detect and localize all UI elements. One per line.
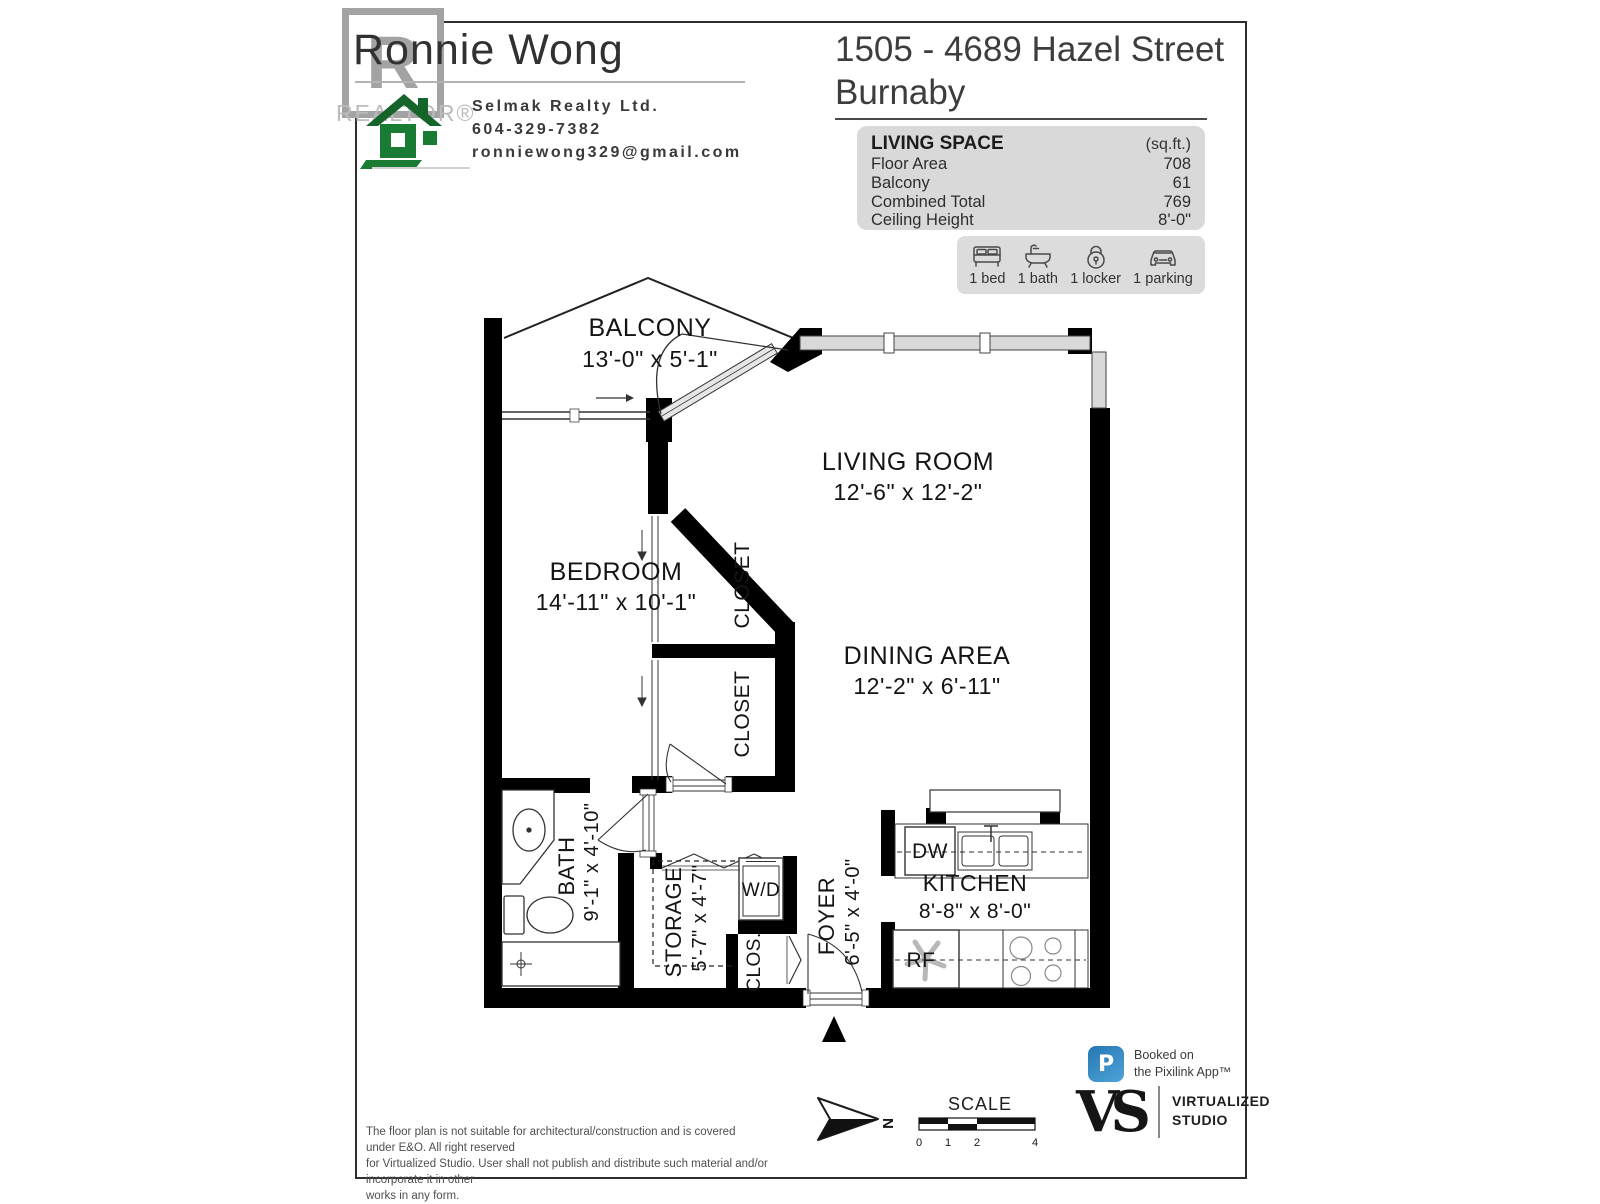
scale-tick: 4	[1032, 1137, 1038, 1149]
bath-dims: 9'-1" x 4'-10"	[581, 803, 603, 922]
scale-title: SCALE	[905, 1094, 1055, 1115]
pixilink-line1: Booked on	[1134, 1047, 1231, 1064]
virtualized-studio-logo: VS VIRTUALIZED STUDIO	[1076, 1084, 1270, 1140]
studio-line1: VIRTUALIZED	[1172, 1092, 1270, 1111]
dining-area-dims: 12'-2" x 6'-11"	[853, 673, 1000, 699]
storage-dims: 5'-7" x 4'-7"	[689, 864, 711, 971]
scale-bar: 0 1 2 4	[905, 1116, 1055, 1156]
living-room-label: LIVING ROOM	[822, 448, 994, 476]
vs-divider	[1158, 1086, 1160, 1138]
scale-tick: 1	[945, 1137, 951, 1149]
dw-label: DW	[912, 840, 948, 863]
disclaimer: The floor plan is not suitable for archi…	[366, 1124, 768, 1204]
pixilink-line2: the Pixilink App™	[1134, 1064, 1231, 1081]
storage-label: STORAGE	[661, 867, 686, 978]
closet-bottom-label: CLOSET	[731, 670, 754, 757]
scale-tick: 0	[916, 1137, 922, 1149]
north-arrow-icon: N	[812, 1092, 902, 1148]
dining-area-label: DINING AREA	[844, 642, 1011, 670]
pixilink-app-icon: P	[1088, 1046, 1124, 1082]
clos-label: CLOS.	[744, 932, 765, 992]
kitchen-dims: 8'-8" x 8'-0"	[919, 900, 1031, 923]
kitchen-label: KITCHEN	[923, 870, 1027, 896]
closet-top-label: CLOSET	[731, 541, 754, 628]
vs-mark: VS	[1076, 1084, 1142, 1140]
scale-tick: 2	[974, 1137, 980, 1149]
living-room-dims: 12'-6" x 12'-2"	[834, 479, 983, 505]
rf-label: RF	[907, 949, 936, 972]
wd-label: W/D	[742, 880, 780, 901]
bath-label: BATH	[554, 836, 579, 895]
bedroom-label: BEDROOM	[550, 558, 683, 586]
balcony-dims: 13'-0" x 5'-1"	[582, 346, 718, 372]
floor-plan: BALCONY 13'-0" x 5'-1" LIVING ROOM 12'-6…	[0, 0, 1600, 1200]
entry-arrow-icon	[822, 1016, 846, 1042]
north-letter: N	[879, 1118, 896, 1129]
foyer-label: FOYER	[814, 877, 839, 955]
studio-line2: STUDIO	[1172, 1111, 1270, 1130]
balcony-label: BALCONY	[589, 314, 712, 342]
pixilink-badge: P Booked on the Pixilink App™	[1088, 1046, 1231, 1082]
bedroom-dims: 14'-11" x 10'-1"	[536, 589, 697, 615]
foyer-dims: 6'-5" x 4'-0"	[842, 858, 864, 965]
